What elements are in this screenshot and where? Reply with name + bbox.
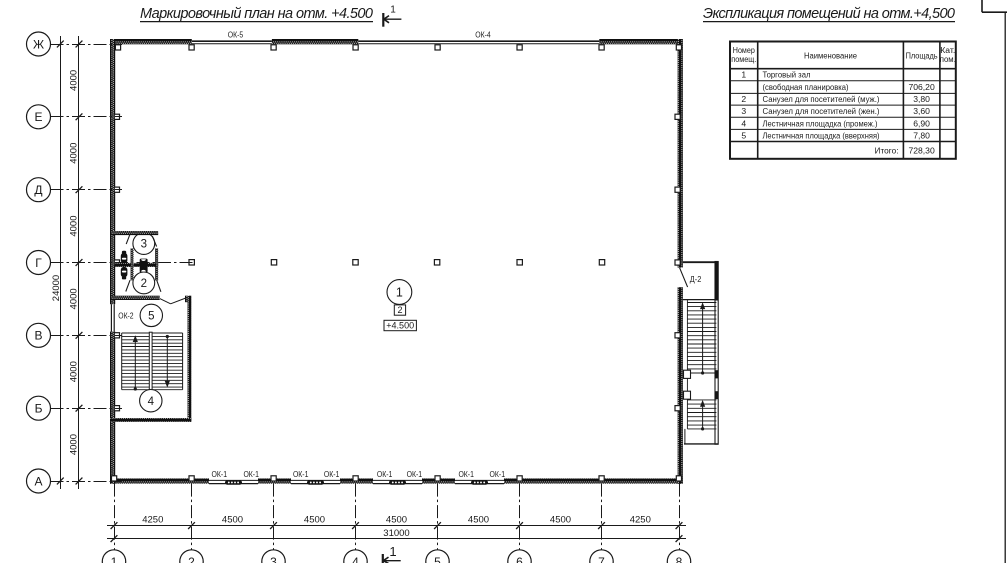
svg-text:+4.500: +4.500: [386, 320, 414, 330]
svg-text:4500: 4500: [304, 514, 325, 525]
svg-text:2: 2: [397, 305, 402, 315]
svg-text:Наименование: Наименование: [804, 52, 858, 61]
svg-text:А: А: [34, 474, 42, 488]
svg-text:Лестничная площадка (вверхняя): Лестничная площадка (вверхняя): [763, 131, 880, 141]
svg-text:Б: Б: [35, 402, 43, 416]
svg-text:4000: 4000: [68, 70, 79, 91]
svg-text:Д-2: Д-2: [690, 275, 702, 284]
svg-text:ОК-1: ОК-1: [243, 470, 259, 479]
svg-text:Санузел для посетителей (муж.): Санузел для посетителей (муж.): [763, 94, 880, 104]
svg-text:4000: 4000: [68, 434, 79, 455]
svg-text:4000: 4000: [68, 288, 79, 309]
svg-text:4: 4: [741, 118, 746, 128]
svg-text:728,30: 728,30: [908, 146, 935, 156]
svg-text:3,60: 3,60: [913, 106, 930, 116]
svg-text:4250: 4250: [630, 514, 651, 525]
svg-text:1: 1: [389, 544, 396, 559]
svg-text:Экспликация помещений на отм.+: Экспликация помещений на отм.+4,500: [703, 6, 955, 22]
svg-text:706,20: 706,20: [908, 82, 935, 92]
svg-text:3: 3: [270, 555, 277, 563]
svg-text:3: 3: [741, 106, 746, 116]
svg-text:24000: 24000: [51, 275, 62, 301]
svg-text:(свободная планировка): (свободная планировка): [763, 82, 849, 92]
svg-text:4000: 4000: [68, 143, 79, 164]
svg-text:2: 2: [188, 555, 195, 563]
svg-text:Торговый зал: Торговый зал: [763, 70, 811, 80]
svg-text:Площадь: Площадь: [906, 52, 938, 61]
svg-text:2: 2: [141, 278, 147, 290]
svg-text:Е: Е: [34, 110, 42, 124]
svg-text:4: 4: [148, 396, 155, 408]
svg-text:5: 5: [148, 311, 154, 323]
svg-text:1: 1: [741, 70, 746, 80]
svg-text:Маркировочный план на отм. +4.: Маркировочный план на отм. +4.500: [140, 6, 373, 22]
svg-text:Д: Д: [34, 183, 42, 197]
svg-text:В: В: [34, 329, 42, 343]
svg-text:ОК-1: ОК-1: [407, 470, 423, 479]
svg-text:Г: Г: [35, 256, 42, 270]
svg-text:8: 8: [676, 555, 683, 563]
svg-text:2: 2: [741, 94, 746, 104]
svg-text:6: 6: [516, 555, 523, 563]
svg-text:ОК-1: ОК-1: [212, 470, 228, 479]
svg-text:помещ.: помещ.: [731, 55, 756, 64]
svg-text:ОК-2: ОК-2: [118, 311, 133, 320]
svg-text:4250: 4250: [142, 514, 163, 525]
svg-text:4500: 4500: [550, 514, 571, 525]
svg-text:5: 5: [741, 131, 746, 141]
svg-text:4500: 4500: [386, 514, 407, 525]
svg-text:Итого:: Итого:: [875, 146, 899, 156]
svg-text:1: 1: [390, 4, 396, 15]
svg-text:4000: 4000: [68, 216, 79, 237]
svg-text:пом.: пом.: [940, 55, 956, 64]
svg-text:7: 7: [598, 555, 605, 563]
svg-text:4500: 4500: [468, 514, 489, 525]
svg-text:ОК-1: ОК-1: [458, 470, 474, 479]
svg-text:ОК-5: ОК-5: [228, 30, 244, 39]
svg-text:4500: 4500: [222, 514, 243, 525]
svg-text:Санузел для посетителей (жен.): Санузел для посетителей (жен.): [763, 106, 880, 116]
svg-text:4: 4: [352, 555, 359, 563]
svg-text:6,90: 6,90: [913, 118, 930, 128]
svg-text:4000: 4000: [68, 361, 79, 382]
svg-text:ОК-1: ОК-1: [324, 470, 340, 479]
svg-text:Номер: Номер: [733, 46, 755, 55]
svg-text:3: 3: [141, 239, 147, 251]
svg-text:Ж: Ж: [33, 37, 44, 51]
svg-text:1: 1: [396, 286, 403, 300]
svg-text:Лестничная площадка (промеж.): Лестничная площадка (промеж.): [763, 118, 878, 128]
svg-text:Кат.: Кат.: [940, 46, 955, 55]
svg-text:1: 1: [111, 555, 118, 563]
svg-text:3,80: 3,80: [913, 94, 930, 104]
svg-text:5: 5: [434, 555, 441, 563]
svg-text:ОК-1: ОК-1: [490, 470, 506, 479]
svg-text:7,80: 7,80: [913, 131, 930, 141]
svg-text:ОК-4: ОК-4: [475, 30, 491, 39]
svg-text:ОК-1: ОК-1: [377, 470, 393, 479]
svg-text:31000: 31000: [383, 528, 409, 539]
svg-text:ОК-1: ОК-1: [293, 470, 309, 479]
